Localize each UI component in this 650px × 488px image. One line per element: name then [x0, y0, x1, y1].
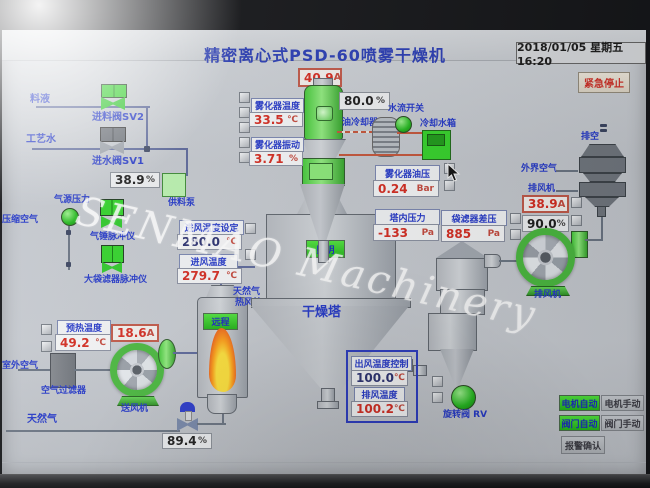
- page-title: 精密离心式PSD-60喷雾干燥机: [150, 42, 500, 66]
- rotary-valve-label: 旋转阀 RV: [443, 411, 487, 420]
- atomizer-temp-label: 雾化器温度: [251, 98, 304, 113]
- atomizer-vib-unit: %: [289, 154, 298, 164]
- tower-outlet-flange: [317, 401, 339, 409]
- bag-dp-box: 885 Pa: [441, 225, 505, 242]
- furnace-gas-label: 天然气: [233, 288, 260, 297]
- exhaust-temp-unit: ℃: [394, 404, 405, 414]
- outlet-ctrl-unit: ℃: [394, 373, 405, 383]
- outlet-ctrl-value: 100.0: [356, 371, 394, 385]
- bag-dp-unit: Pa: [488, 229, 500, 239]
- outlet-ctrl-box[interactable]: 100.0 ℃: [351, 370, 408, 386]
- water-valve-label: 进水阀SV1: [92, 157, 144, 167]
- collector-cone: [440, 349, 474, 386]
- spin-button[interactable]: [239, 92, 250, 103]
- water-flow-indicator-icon: [395, 116, 412, 133]
- spin-button[interactable]: [571, 215, 582, 226]
- air-filter-label: 空气过滤器: [41, 387, 86, 396]
- spin-button[interactable]: [239, 137, 250, 148]
- preheat-temp-value: 49.2: [60, 336, 90, 350]
- atomizer-temp-box: 33.5 ℃: [249, 112, 303, 127]
- valve-auto-button[interactable]: 阀门自动: [559, 415, 600, 431]
- vent-label: 排空: [581, 133, 599, 142]
- atomizer-speed-value: 80.0: [344, 94, 374, 108]
- pipe: [173, 352, 199, 354]
- preheat-temp-unit: ℃: [95, 338, 106, 348]
- spin-button[interactable]: [432, 392, 443, 403]
- vent-mark: [600, 129, 607, 132]
- outside-air-right-label: 外界空气: [521, 165, 557, 174]
- exhaust-fan-icon: [516, 228, 575, 287]
- bag-pulse-valve-icon[interactable]: [102, 262, 122, 273]
- gas-valve-position-box[interactable]: 89.4 %: [162, 433, 212, 449]
- supply-fan-label: 送风机: [121, 405, 148, 414]
- atomizer-vib-box: 3.71 %: [249, 151, 303, 166]
- bag-pulse-label: 大袋滤器脉冲仪: [84, 276, 147, 285]
- feed-valve-actuator-icon: [101, 84, 127, 98]
- supply-fan-current-value: 18.6: [117, 326, 147, 340]
- atomizer-temp-value: 33.5: [254, 113, 284, 127]
- feed-pump-speed-box[interactable]: 38.9 %: [110, 172, 160, 188]
- bag-dp-value: 885: [446, 227, 471, 241]
- oil-pressure-unit: Bar: [417, 184, 434, 194]
- rotary-valve-icon[interactable]: [451, 385, 476, 410]
- feed-valve-icon[interactable]: [101, 97, 125, 110]
- monitor-bezel-left: [0, 0, 2, 488]
- exhaust-fan-speed-unit: %: [557, 219, 566, 229]
- silencer-roof: [581, 144, 624, 157]
- pipe: [146, 106, 148, 149]
- oil-pipe: [339, 154, 424, 156]
- gas-valve-stem: [185, 411, 192, 421]
- feed-pump-icon[interactable]: [162, 173, 186, 197]
- bag-dp-label: 袋滤器差压: [441, 210, 507, 226]
- exhaust-temp-label: 排风温度: [354, 387, 405, 402]
- pipe: [556, 170, 578, 172]
- oil-pipe: [337, 131, 374, 133]
- feed-pump-label: 供料泵: [168, 199, 195, 208]
- emergency-stop-button[interactable]: 紧急停止: [578, 72, 630, 93]
- pipe: [74, 369, 112, 371]
- water-valve-icon[interactable]: [100, 141, 124, 154]
- tower-pressure-value: -133: [378, 226, 408, 240]
- pipe: [18, 369, 50, 371]
- cooling-tank-window: [427, 134, 445, 146]
- monitor-bezel-right: [646, 0, 650, 488]
- inlet-temp-box: 279.7 ℃: [177, 268, 242, 284]
- valve-manual-button[interactable]: 阀门手动: [601, 415, 644, 431]
- alarm-ack-button[interactable]: 报警确认: [561, 436, 605, 454]
- gas-valve-position-value: 89.4: [167, 434, 197, 448]
- tower-label: 干燥塔: [302, 306, 341, 319]
- mouse-cursor-icon: [447, 163, 461, 183]
- exhaust-fan-current-unit: A: [558, 199, 566, 210]
- outlet-ctrl-label: 出风温度控制: [351, 356, 412, 371]
- water-flow-label: 水流开关: [388, 105, 424, 114]
- vent-mark: [600, 124, 607, 127]
- pipe: [186, 148, 188, 176]
- silencer-section: [579, 157, 626, 173]
- pipe-junction: [66, 262, 71, 267]
- compressed-air-label: 压缩空气: [2, 216, 38, 225]
- silencer-stem: [597, 206, 606, 217]
- pipe: [6, 430, 180, 432]
- motor-auto-button[interactable]: 电机自动: [559, 395, 600, 411]
- spin-button[interactable]: [41, 324, 52, 335]
- feed-line-label: 料液: [30, 95, 50, 105]
- feed-pump-speed-unit: %: [146, 175, 155, 185]
- silencer-section: [579, 182, 626, 197]
- process-water-label: 工艺水: [26, 135, 56, 145]
- exhaust-fan-top-label: 排风机: [528, 185, 555, 194]
- inlet-temp-unit: ℃: [226, 271, 237, 281]
- spin-button[interactable]: [510, 229, 521, 240]
- tower-pressure-label: 塔内压力: [375, 209, 440, 225]
- atomizer-current-unit: A: [334, 72, 342, 83]
- spin-button[interactable]: [432, 376, 443, 387]
- atomizer-drive-window: [309, 163, 333, 180]
- monitor-bezel-top: [0, 0, 650, 30]
- oil-pressure-box: 0.24 Bar: [373, 180, 439, 197]
- atomizer-speed-unit: %: [376, 96, 385, 106]
- inlet-temp-value: 279.7: [182, 269, 220, 283]
- water-valve-actuator-icon: [100, 127, 126, 142]
- spin-button[interactable]: [571, 197, 582, 208]
- pipe: [556, 190, 578, 192]
- motor-manual-button[interactable]: 电机手动: [601, 395, 644, 411]
- preheat-temp-box: 49.2 ℃: [55, 334, 111, 351]
- atomizer-vib-value: 3.71: [254, 152, 284, 166]
- atomizer-window: [316, 106, 333, 121]
- feed-valve-label: 进料阀SV2: [92, 113, 144, 123]
- tower-pressure-unit: Pa: [422, 228, 434, 238]
- pipe: [36, 106, 150, 108]
- pipe: [601, 213, 603, 240]
- monitor-photo: 精密离心式PSD-60喷雾干燥机 2018/01/05 星期五 16:20 紧急…: [0, 0, 650, 488]
- atomizer-speed-box[interactable]: 80.0 %: [339, 92, 390, 110]
- collector-roof: [436, 241, 488, 258]
- spin-button[interactable]: [41, 341, 52, 352]
- pipe-junction: [66, 230, 71, 235]
- furnace-outlet: [207, 394, 237, 414]
- preheat-temp-label: 预热温度: [57, 320, 111, 335]
- atomizer-temp-unit: ℃: [287, 115, 298, 125]
- spin-button[interactable]: [510, 213, 521, 224]
- exhaust-fan-current-box: 38.9 A: [522, 195, 569, 213]
- supply-fan-outlet: [158, 339, 176, 369]
- screen-bottom-line: [2, 462, 646, 463]
- atomizer-funnel: [298, 139, 349, 160]
- bag-pulse-actuator-icon: [101, 245, 124, 263]
- monitor-bezel-bottom: [0, 474, 650, 488]
- supply-fan-current-box: 18.6 A: [111, 324, 159, 342]
- supply-fan-current-unit: A: [147, 328, 155, 339]
- feed-pump-speed-value: 38.9: [115, 173, 145, 187]
- silencer-taper: [583, 173, 622, 182]
- natural-gas-label: 天然气: [27, 415, 57, 425]
- exhaust-temp-box: 100.2 ℃: [351, 401, 408, 417]
- tower-pressure-box: -133 Pa: [373, 224, 439, 241]
- datetime-display: 2018/01/05 星期五 16:20: [516, 42, 646, 64]
- exhaust-temp-value: 100.2: [356, 402, 394, 416]
- exhaust-fan-current-value: 38.9: [528, 197, 558, 211]
- oil-pressure-label: 雾化器油压: [375, 165, 440, 181]
- pipe-junction: [144, 146, 150, 152]
- atomizer-vib-label: 雾化器振动: [251, 137, 304, 152]
- air-filter-icon: [50, 353, 76, 388]
- gas-valve-position-unit: %: [198, 436, 207, 446]
- cooling-tank-label: 冷却水箱: [420, 120, 456, 129]
- supply-fan-icon: [110, 343, 164, 397]
- oil-pressure-value: 0.24: [378, 182, 408, 196]
